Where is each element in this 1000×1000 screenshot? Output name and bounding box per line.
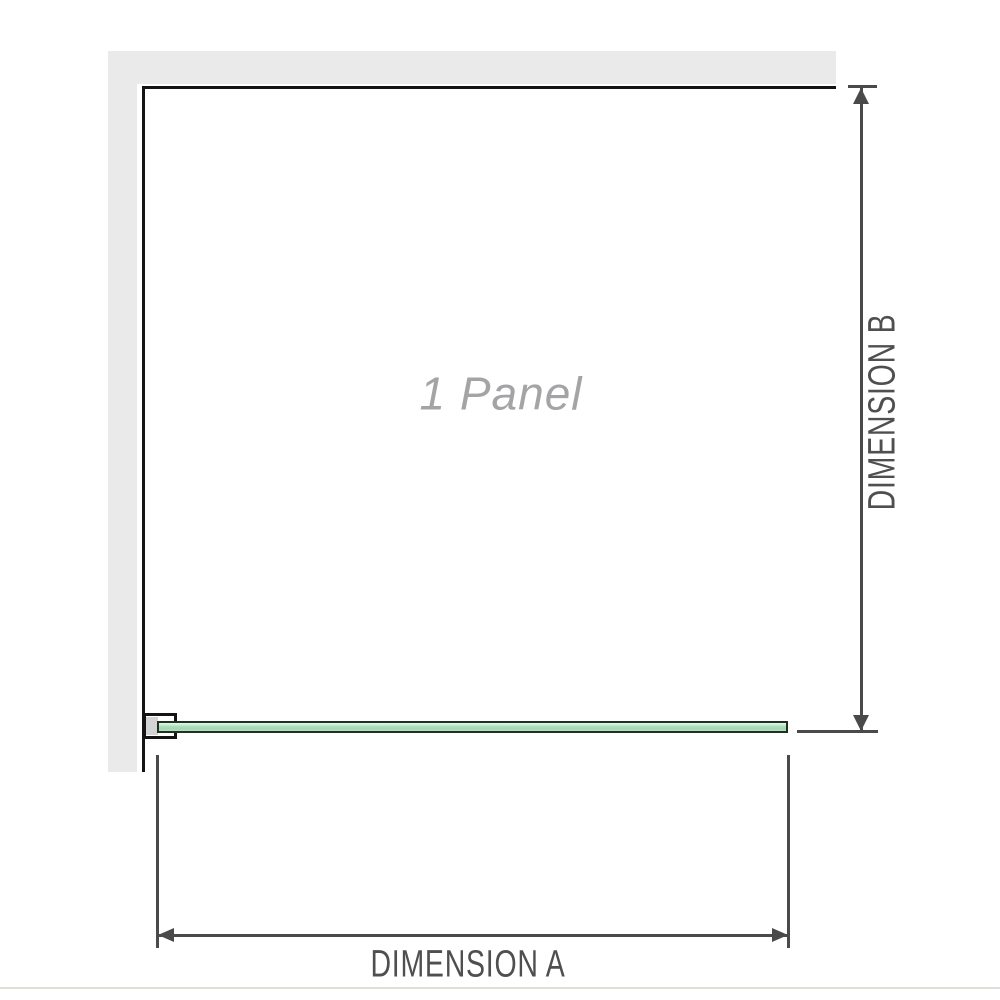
- dimension-a-line: [158, 934, 788, 937]
- wall-inner-edge-left: [142, 86, 145, 772]
- wall-inner-edge-top: [142, 86, 836, 89]
- glass-panel: [157, 721, 788, 733]
- dimension-a-label: DIMENSION A: [370, 944, 565, 987]
- baseline-divider: [0, 987, 1000, 989]
- dimension-a-extension-left: [156, 755, 159, 948]
- panel-count-label: 1 Panel: [419, 366, 582, 420]
- wall-top: [108, 51, 836, 84]
- arrow-up-icon: [853, 88, 869, 104]
- shower-panel-dimension-diagram: 1 Panel DIMENSION B DIMENSION A: [0, 0, 1000, 1000]
- arrow-right-icon: [772, 928, 788, 942]
- dimension-a-extension-right: [787, 755, 790, 948]
- arrow-down-icon: [853, 715, 869, 731]
- dimension-b-label: DIMENSION B: [862, 314, 905, 511]
- arrow-left-icon: [158, 928, 174, 942]
- wall-left: [108, 51, 137, 772]
